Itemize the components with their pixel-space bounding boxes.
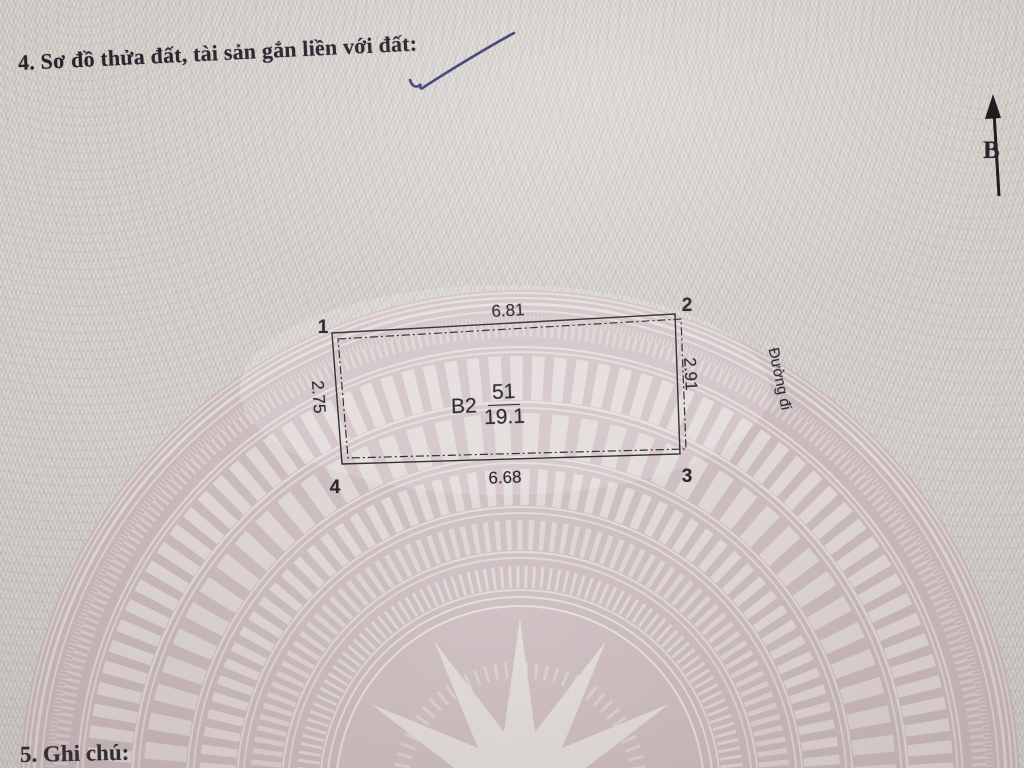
plot-corner-1: 1	[315, 317, 331, 339]
north-arrowhead	[985, 94, 1001, 119]
drum-watermark-pattern	[20, 285, 1020, 768]
parcel-number-area-fraction: 51 19.1	[483, 381, 525, 429]
edge-length-left: 2.75	[308, 374, 327, 419]
north-label: B	[983, 137, 1000, 165]
edge-length-right: 2.91	[681, 352, 699, 397]
edge-length-bottom: 6.68	[477, 467, 534, 489]
parcel-number: 51	[488, 381, 520, 406]
plot-corner-4: 4	[327, 477, 343, 499]
plot-corner-2: 2	[679, 295, 695, 317]
parcel-prefix: B2	[451, 394, 478, 419]
edge-length-top: 6.81	[480, 300, 537, 323]
plot-corner-3: 3	[679, 466, 695, 488]
certificate-photo: 4. Sơ đồ thửa đất, tài sản gắn liền với …	[0, 0, 1024, 768]
parcel-area: 19.1	[484, 405, 526, 429]
section5-heading: 5. Ghi chú:	[20, 740, 130, 768]
pen-stroke	[410, 33, 514, 88]
parcel-label: B2 51 19.1	[450, 381, 525, 431]
